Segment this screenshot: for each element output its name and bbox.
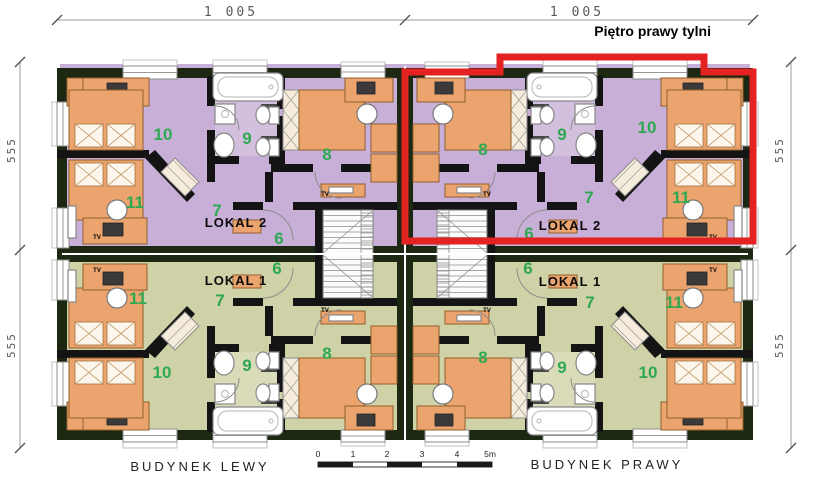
room-number-right-lokal2-8: 8: [478, 140, 487, 159]
scale-bar: 0 1 2 3 4 5m: [316, 449, 496, 467]
tv-label: TV: [93, 235, 101, 241]
dim-top-right: 1 005: [550, 5, 604, 20]
room-number-right-lokal2-7: 7: [584, 188, 593, 207]
room-number-left-lokal1-11: 11: [129, 289, 147, 308]
room-number-right-lokal2-9: 9: [557, 125, 566, 144]
tv-label: TV: [321, 308, 329, 314]
room-number-right-lokal1-9: 9: [557, 358, 566, 377]
tv-label: TV: [483, 192, 491, 198]
room-number-right-lokal1-7: 7: [585, 293, 594, 312]
scale-tick-4: 4: [455, 449, 460, 459]
room-number-right-lokal1-8: 8: [478, 348, 487, 367]
room-number-right-lokal2-11: 11: [672, 188, 690, 207]
scale-tick-1: 1: [351, 449, 356, 459]
building-label-left: BUDYNEK LEWY: [130, 459, 269, 474]
room-number-left-lokal1-9: 9: [242, 356, 251, 375]
room-number-left-lokal2-10: 10: [154, 125, 173, 144]
dim-left-upper: 555: [5, 137, 18, 163]
room-number-left-lokal2-6: 6: [274, 229, 283, 248]
room-number-left-lokal1-8: 8: [322, 344, 331, 363]
tv-label: TV: [709, 268, 717, 274]
scale-tick-5: 5m: [484, 449, 496, 459]
room-number-left-lokal2-11: 11: [126, 193, 144, 212]
room-number-left-lokal2-8: 8: [322, 145, 331, 164]
room-number-right-lokal1-6: 6: [523, 259, 532, 278]
room-number-right-lokal1-11: 11: [665, 293, 683, 312]
floor-plan-page: 1 005 1 005 555 555 555 555 10 9 8 11 7 …: [0, 0, 814, 490]
room-number-left-lokal1-6: 6: [272, 259, 281, 278]
floor-plan-drawing: 1 005 1 005 555 555 555 555 10 9 8 11 7 …: [0, 0, 814, 490]
scale-tick-0: 0: [316, 449, 321, 459]
lokal-label-right-1: LOKAL 1: [539, 274, 601, 289]
dim-right-upper: 555: [773, 137, 786, 163]
room-number-right-lokal2-10: 10: [638, 118, 657, 137]
dim-right-lower: 555: [773, 332, 786, 358]
page-title: Piętro prawy tylni: [594, 23, 711, 39]
scale-tick-3: 3: [420, 449, 425, 459]
tv-label: TV: [321, 192, 329, 198]
room-number-left-lokal1-10: 10: [153, 363, 172, 382]
lokal-label-left-2: LOKAL 2: [205, 215, 267, 230]
lokal-label-right-2: LOKAL 2: [539, 218, 601, 233]
tv-label: TV: [93, 268, 101, 274]
building-label-right: BUDYNEK PRAWY: [531, 457, 684, 472]
scale-tick-2: 2: [385, 449, 390, 459]
dim-left-lower: 555: [5, 332, 18, 358]
lokal-label-left-1: LOKAL 1: [205, 273, 267, 288]
room-number-left-lokal1-7: 7: [215, 291, 224, 310]
tv-label: TV: [483, 308, 491, 314]
dim-top-left: 1 005: [204, 5, 258, 20]
room-number-left-lokal2-9: 9: [242, 129, 251, 148]
room-number-right-lokal1-10: 10: [639, 363, 658, 382]
